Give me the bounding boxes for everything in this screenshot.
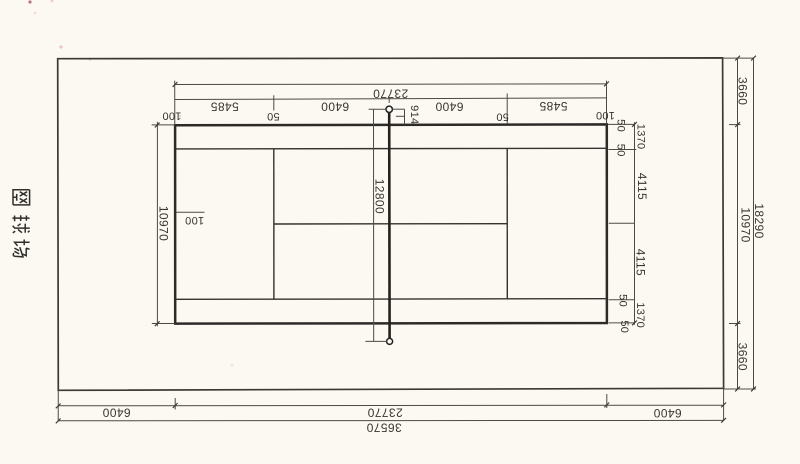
svg-text:36570: 36570 [366, 420, 401, 434]
svg-text:10970: 10970 [739, 207, 753, 242]
svg-text:23770: 23770 [367, 405, 402, 419]
svg-text:100: 100 [162, 110, 181, 122]
svg-text:6400: 6400 [321, 100, 349, 114]
svg-text:50: 50 [618, 320, 630, 333]
svg-text:50: 50 [617, 294, 629, 307]
svg-text:1370: 1370 [635, 124, 647, 150]
svg-text:50: 50 [614, 119, 626, 132]
svg-text:100: 100 [185, 214, 204, 226]
svg-text:12800: 12800 [372, 179, 386, 214]
svg-text:18290: 18290 [752, 203, 766, 238]
svg-text:5485: 5485 [539, 99, 567, 113]
svg-text:3660: 3660 [736, 77, 750, 105]
svg-text:6400: 6400 [435, 99, 463, 113]
svg-text:4115: 4115 [635, 173, 649, 200]
svg-text:50: 50 [615, 144, 627, 157]
svg-text:50: 50 [267, 110, 280, 122]
svg-text:100: 100 [596, 109, 615, 121]
svg-text:6400: 6400 [653, 406, 681, 420]
svg-text:5485: 5485 [210, 100, 238, 114]
svg-text:1370: 1370 [634, 302, 646, 328]
svg-text:4115: 4115 [634, 249, 648, 276]
svg-text:914: 914 [408, 105, 420, 124]
svg-text:10970: 10970 [157, 206, 171, 241]
svg-text:50: 50 [496, 111, 509, 123]
svg-text:3660: 3660 [736, 343, 750, 371]
svg-text:6400: 6400 [102, 405, 130, 419]
